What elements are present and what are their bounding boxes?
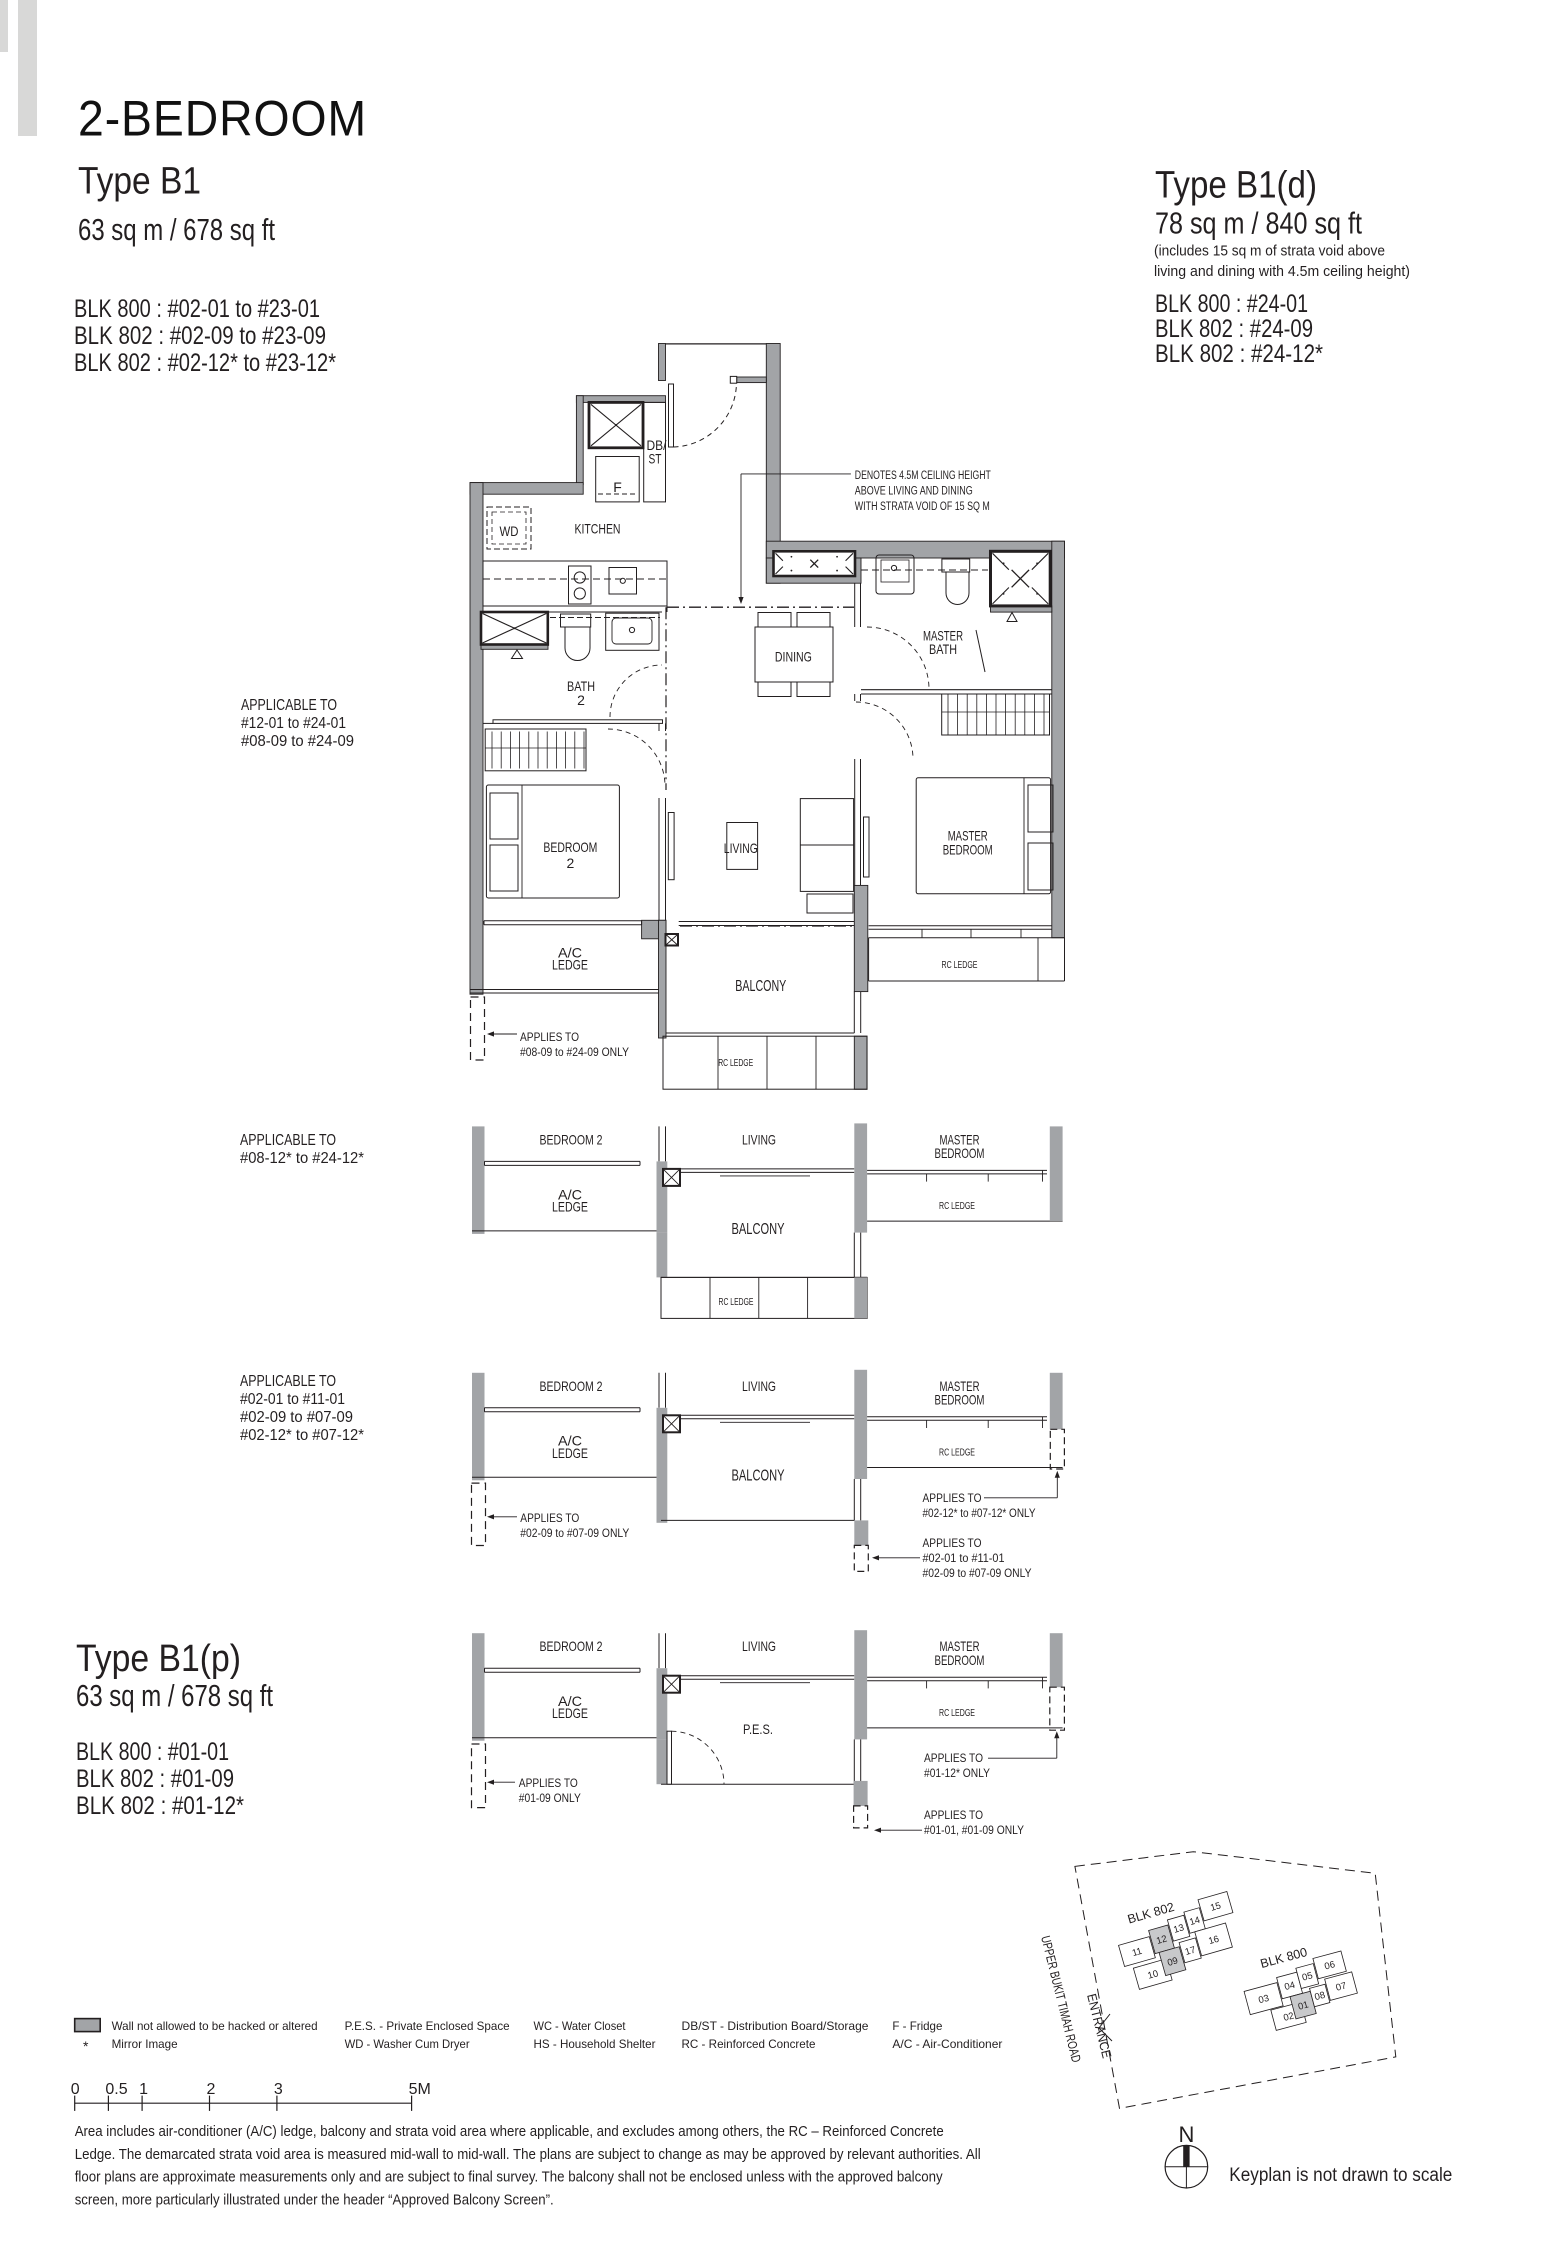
svg-text:BALCONY: BALCONY	[735, 978, 786, 995]
svg-text:3: 3	[274, 2081, 283, 2098]
svg-text:BLK 802 : #01-12*: BLK 802 : #01-12*	[76, 1792, 244, 1820]
svg-text:APPLIES TO: APPLIES TO	[519, 1778, 578, 1790]
svg-text:APPLIES TO: APPLIES TO	[924, 1753, 983, 1765]
svg-text:APPLIES TO: APPLIES TO	[520, 1513, 579, 1525]
svg-text:#08-09 to #24-09: #08-09 to #24-09	[241, 733, 354, 750]
svg-text:DINING: DINING	[775, 649, 812, 665]
svg-text:APPLICABLE TO: APPLICABLE TO	[240, 1132, 336, 1149]
svg-text:F: F	[613, 479, 622, 495]
svg-text:BLK 802 : #24-09: BLK 802 : #24-09	[1155, 315, 1313, 343]
svg-text:BLK 802 : #02-12* to #23-12*: BLK 802 : #02-12* to #23-12*	[74, 349, 336, 377]
svg-text:#02-09 to #07-09: #02-09 to #07-09	[240, 1409, 353, 1426]
svg-text:RC LEDGE: RC LEDGE	[939, 1708, 975, 1719]
svg-text:RC - Reinforced Concrete: RC - Reinforced Concrete	[682, 2037, 816, 2051]
svg-text:#01-01, #01-09 ONLY: #01-01, #01-09 ONLY	[924, 1825, 1024, 1837]
svg-text:RC LEDGE: RC LEDGE	[719, 1297, 754, 1308]
svg-text:RC LEDGE: RC LEDGE	[718, 1058, 753, 1069]
svg-text:BEDROOM 2: BEDROOM 2	[540, 1378, 603, 1394]
svg-text:HS - Household Shelter: HS - Household Shelter	[534, 2037, 656, 2051]
svg-text:RC LEDGE: RC LEDGE	[942, 960, 978, 971]
svg-text:Mirror Image: Mirror Image	[112, 2037, 178, 2051]
svg-text:2: 2	[567, 855, 575, 871]
svg-text:DENOTES 4.5M CEILING HEIGHT: DENOTES 4.5M CEILING HEIGHT	[855, 470, 991, 482]
svg-text:LEDGE: LEDGE	[552, 957, 588, 973]
svg-text:ST: ST	[649, 452, 662, 467]
svg-text:APPLIES TO: APPLIES TO	[520, 1032, 579, 1044]
svg-text:2: 2	[577, 692, 585, 708]
svg-text:BEDROOM: BEDROOM	[943, 842, 993, 858]
svg-text:#08-09 to #24-09 ONLY: #08-09 to #24-09 ONLY	[520, 1047, 629, 1059]
svg-text:LEDGE: LEDGE	[552, 1445, 588, 1461]
svg-text:A/C - Air-Conditioner: A/C - Air-Conditioner	[892, 2037, 1002, 2051]
svg-text:P.E.S. - Private Enclosed Spac: P.E.S. - Private Enclosed Space	[345, 2019, 510, 2033]
svg-text:LIVING: LIVING	[742, 1378, 776, 1394]
svg-text:2-BEDROOM: 2-BEDROOM	[78, 91, 367, 147]
svg-text:BEDROOM: BEDROOM	[935, 1652, 985, 1668]
svg-text:BLK 802 : #02-09 to #23-09: BLK 802 : #02-09 to #23-09	[74, 322, 326, 350]
svg-text:WITH STRATA VOID OF 15 SQ M: WITH STRATA VOID OF 15 SQ M	[855, 501, 990, 513]
svg-text:BLK 800 : #24-01: BLK 800 : #24-01	[1155, 290, 1308, 318]
svg-text:APPLIES TO: APPLIES TO	[923, 1493, 982, 1505]
svg-text:KITCHEN: KITCHEN	[575, 521, 621, 537]
svg-text:LIVING: LIVING	[724, 840, 758, 856]
svg-text:RC LEDGE: RC LEDGE	[939, 1201, 975, 1212]
svg-text:Ledge. The demarcated strata v: Ledge. The demarcated strata void area i…	[75, 2146, 981, 2163]
svg-text:WD - Washer Cum Dryer: WD - Washer Cum Dryer	[345, 2037, 470, 2051]
svg-text:living and dining with 4.5m ce: living and dining with 4.5m ceiling heig…	[1154, 264, 1410, 280]
svg-text:floor plans are approximate me: floor plans are approximate measurements…	[75, 2169, 943, 2186]
svg-text:2: 2	[207, 2081, 216, 2098]
svg-text:63 sq m / 678 sq ft: 63 sq m / 678 sq ft	[76, 1678, 273, 1713]
svg-text:LIVING: LIVING	[742, 1131, 776, 1147]
svg-text:LEDGE: LEDGE	[552, 1198, 588, 1214]
svg-text:#02-01 to #11-01: #02-01 to #11-01	[923, 1553, 1005, 1565]
svg-text:BEDROOM: BEDROOM	[935, 1145, 985, 1161]
svg-text:APPLIES TO: APPLIES TO	[923, 1538, 982, 1550]
svg-text:BEDROOM: BEDROOM	[935, 1392, 985, 1408]
svg-text:#02-12* to #07-12* ONLY: #02-12* to #07-12* ONLY	[923, 1508, 1036, 1520]
svg-text:Wall not allowed to be hacked: Wall not allowed to be hacked or altered	[112, 2019, 318, 2033]
svg-text:APPLICABLE TO: APPLICABLE TO	[240, 1373, 336, 1390]
svg-text:#02-01 to #11-01: #02-01 to #11-01	[240, 1391, 345, 1408]
svg-text:APPLICABLE TO: APPLICABLE TO	[241, 697, 337, 714]
svg-text:WC - Water Closet: WC - Water Closet	[534, 2019, 627, 2033]
svg-text:#12-01 to #24-01: #12-01 to #24-01	[241, 715, 346, 732]
svg-text:P.E.S.: P.E.S.	[743, 1721, 773, 1737]
svg-text:#02-09 to #07-09 ONLY: #02-09 to #07-09 ONLY	[923, 1568, 1032, 1580]
svg-text:F - Fridge: F - Fridge	[892, 2019, 942, 2033]
svg-text:BEDROOM 2: BEDROOM 2	[540, 1131, 603, 1147]
svg-text:BLK 802 : #24-12*: BLK 802 : #24-12*	[1155, 340, 1323, 368]
svg-text:LIVING: LIVING	[742, 1638, 776, 1654]
svg-text:78 sq m / 840 sq ft: 78 sq m / 840 sq ft	[1155, 206, 1362, 241]
svg-text:#02-09 to #07-09 ONLY: #02-09 to #07-09 ONLY	[520, 1528, 629, 1540]
svg-text:#01-09 ONLY: #01-09 ONLY	[519, 1793, 581, 1805]
svg-text:RC LEDGE: RC LEDGE	[939, 1447, 975, 1458]
svg-text:Type B1(d): Type B1(d)	[1155, 165, 1317, 207]
svg-text:Area includes air-conditioner: Area includes air-conditioner (A/C) ledg…	[75, 2123, 944, 2140]
svg-text:screen, more particularly illu: screen, more particularly illustrated un…	[75, 2191, 554, 2208]
svg-text:BALCONY: BALCONY	[732, 1467, 785, 1484]
svg-text:#08-12* to #24-12*: #08-12* to #24-12*	[240, 1150, 364, 1167]
svg-text:Keyplan is not drawn to scale: Keyplan is not drawn to scale	[1229, 2165, 1452, 2186]
svg-text:0: 0	[71, 2081, 80, 2098]
svg-text:ABOVE LIVING AND DINING: ABOVE LIVING AND DINING	[855, 486, 973, 498]
svg-text:*: *	[83, 2038, 89, 2054]
svg-text:(includes 15 sq m of strata vo: (includes 15 sq m of strata void above	[1154, 244, 1385, 260]
svg-text:WD: WD	[500, 524, 519, 539]
svg-text:APPLIES TO: APPLIES TO	[924, 1810, 983, 1822]
svg-text:BALCONY: BALCONY	[732, 1221, 785, 1238]
svg-text:BEDROOM: BEDROOM	[543, 839, 597, 855]
svg-text:Type B1(p): Type B1(p)	[76, 1638, 241, 1680]
svg-text:BLK 800 : #02-01 to #23-01: BLK 800 : #02-01 to #23-01	[74, 295, 320, 323]
svg-text:0.5: 0.5	[105, 2081, 127, 2098]
svg-text:BLK 802 : #01-09: BLK 802 : #01-09	[76, 1765, 234, 1793]
svg-text:#01-12* ONLY: #01-12* ONLY	[924, 1768, 990, 1780]
svg-text:BATH: BATH	[929, 641, 957, 657]
svg-text:LEDGE: LEDGE	[552, 1705, 588, 1721]
svg-text:DB/ST - Distribution Board/Sto: DB/ST - Distribution Board/Storage	[682, 2019, 869, 2033]
svg-text:BEDROOM 2: BEDROOM 2	[540, 1638, 603, 1654]
svg-text:#02-12* to #07-12*: #02-12* to #07-12*	[240, 1427, 364, 1444]
svg-text:63 sq m / 678 sq ft: 63 sq m / 678 sq ft	[78, 212, 275, 247]
svg-text:1: 1	[139, 2081, 148, 2098]
svg-text:Type B1: Type B1	[78, 161, 201, 203]
svg-text:5M: 5M	[409, 2081, 431, 2098]
svg-text:N: N	[1178, 2122, 1194, 2147]
svg-text:BLK 800 : #01-01: BLK 800 : #01-01	[76, 1738, 229, 1766]
